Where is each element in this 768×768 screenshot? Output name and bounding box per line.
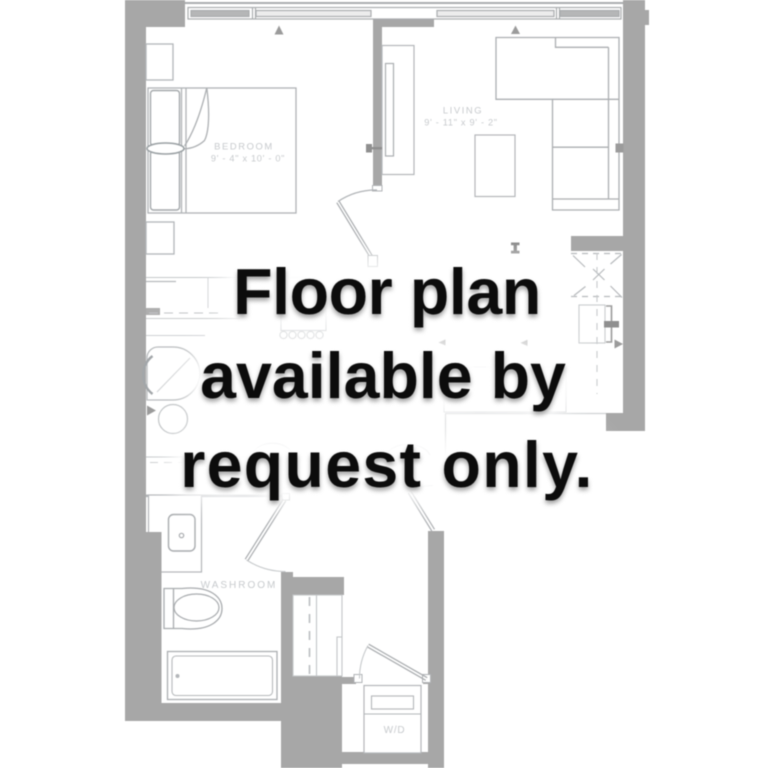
svg-text:9' - 11" x 9' - 2": 9' - 11" x 9' - 2" — [424, 118, 498, 128]
svg-text:W/D: W/D — [384, 725, 406, 736]
svg-text:BEDROOM: BEDROOM — [214, 141, 274, 152]
svg-text:9' - 4" x 10' - 0": 9' - 4" x 10' - 0" — [211, 154, 285, 164]
svg-text:WASHROOM: WASHROOM — [201, 580, 278, 591]
svg-text:LIVING: LIVING — [443, 105, 483, 116]
